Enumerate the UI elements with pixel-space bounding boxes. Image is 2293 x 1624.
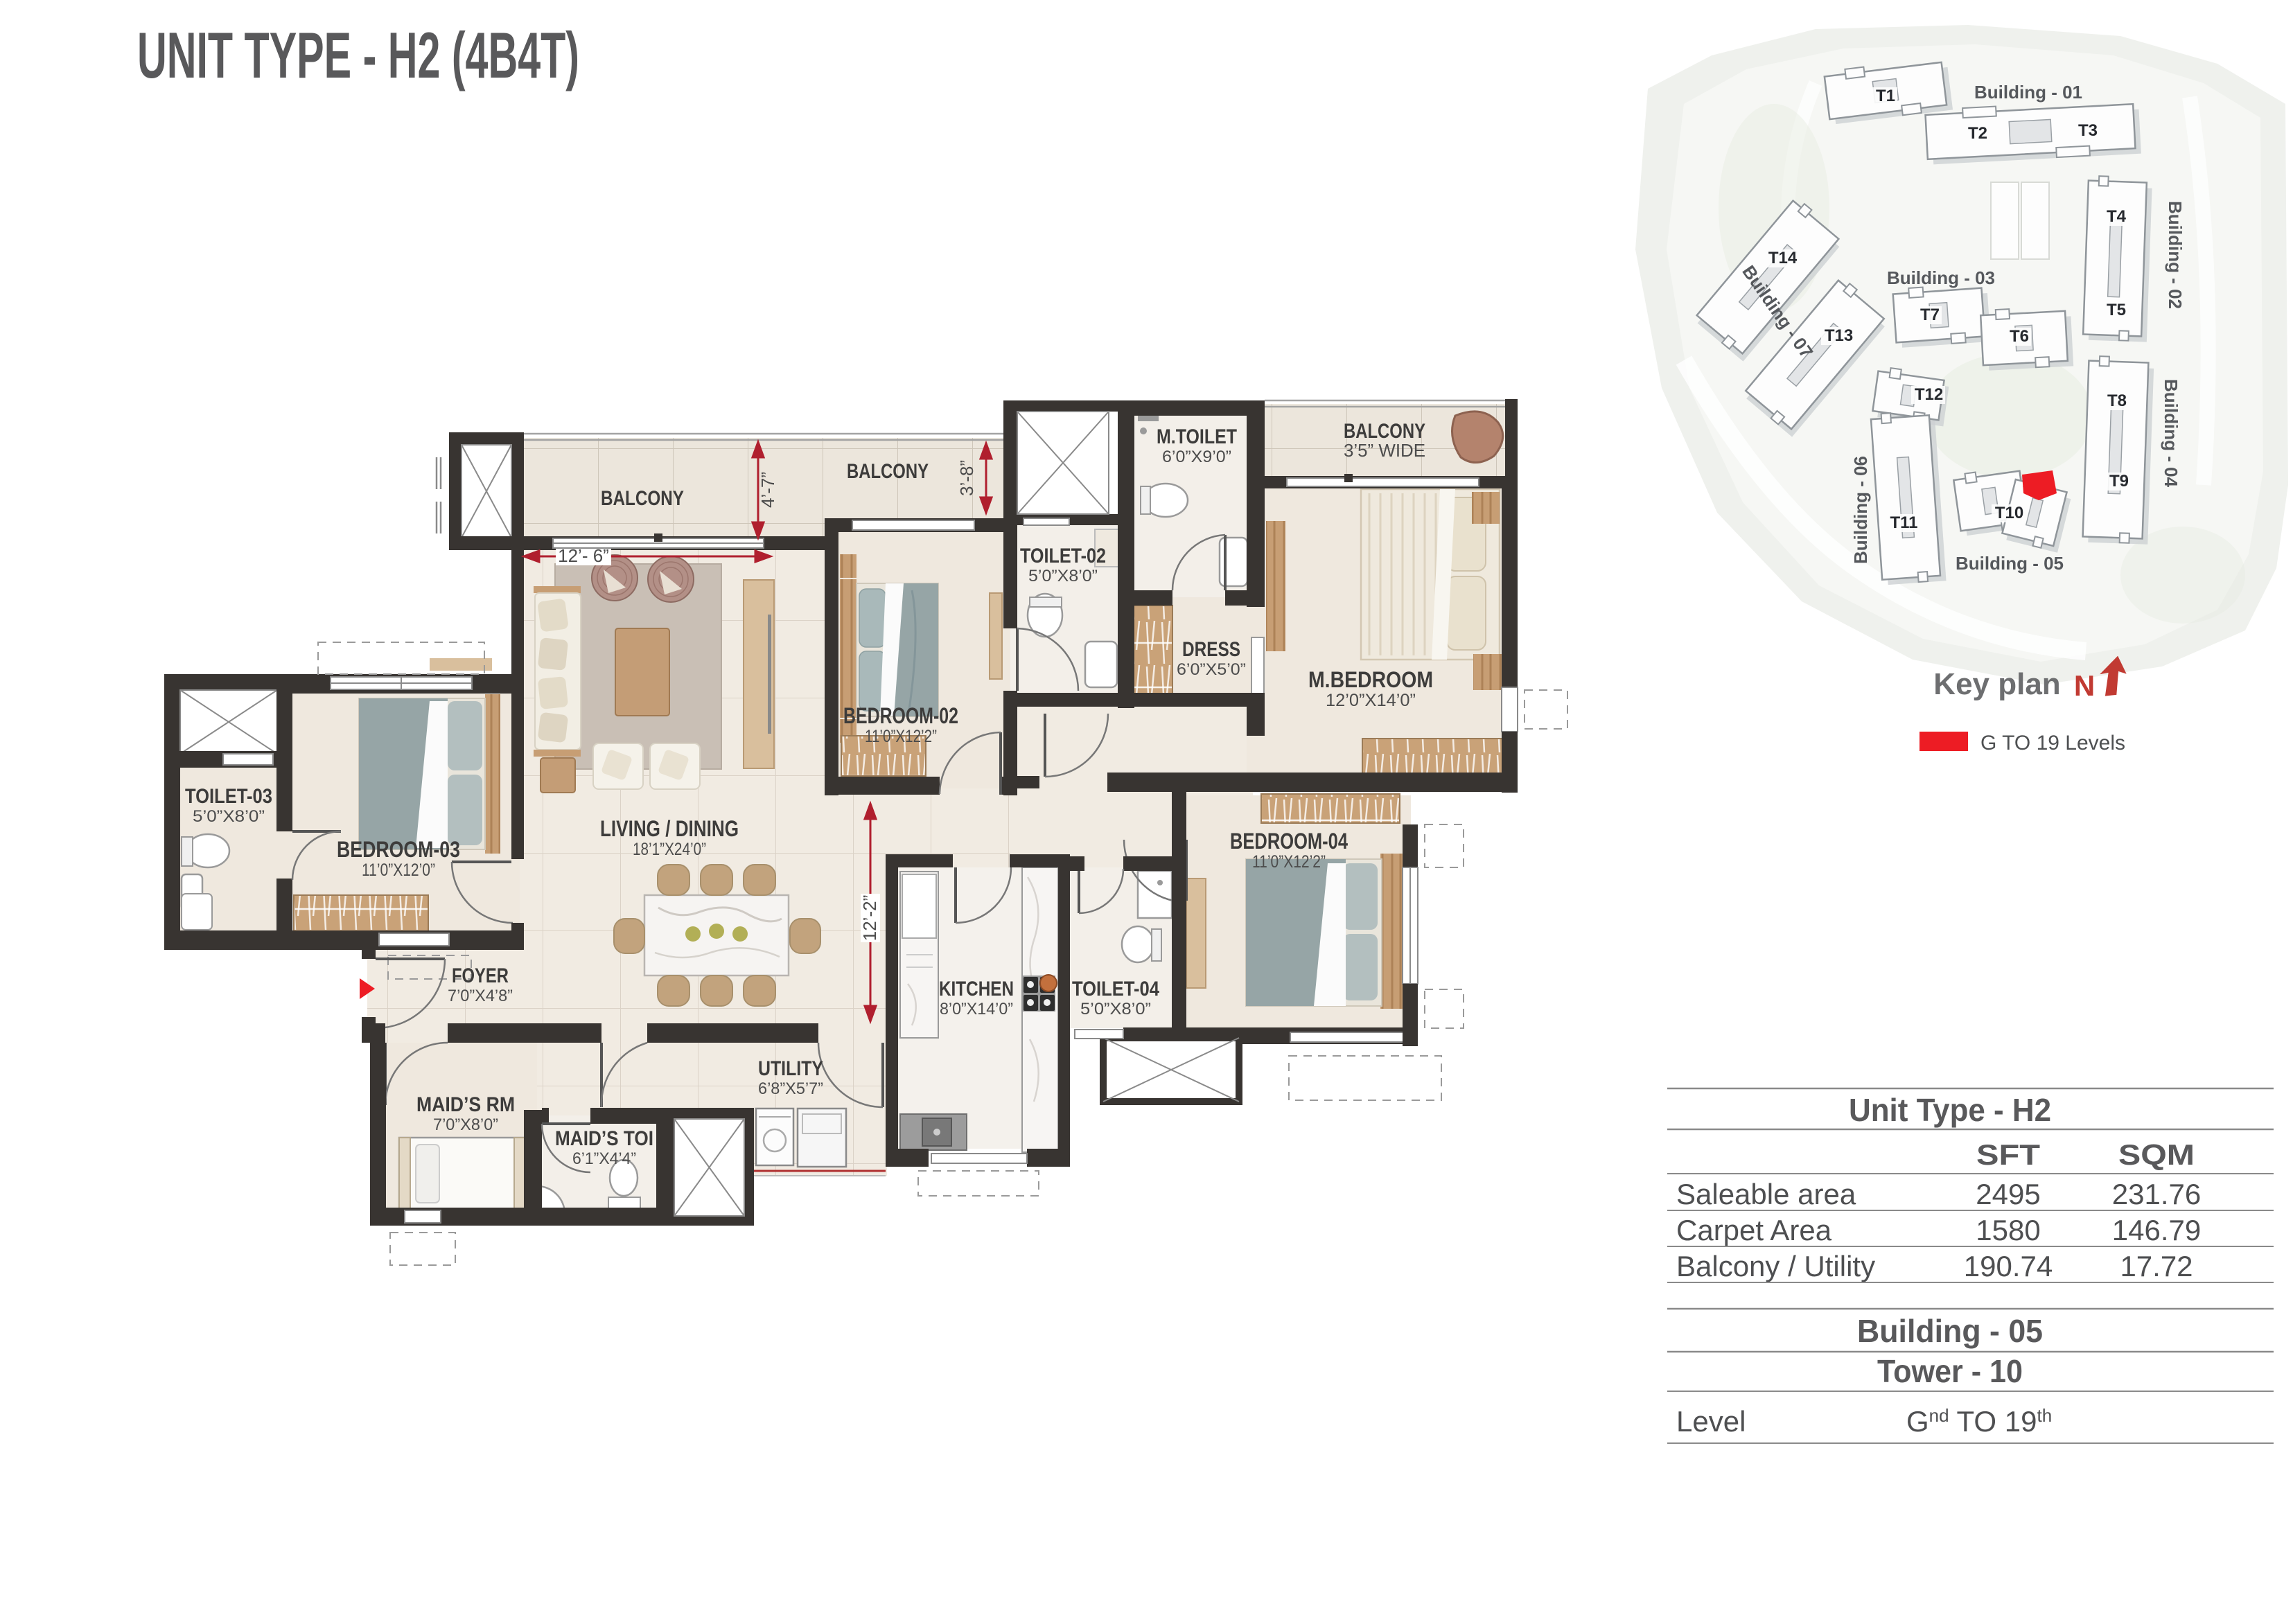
svg-text:KITCHEN: KITCHEN — [939, 978, 1014, 1000]
svg-text:T2: T2 — [1968, 124, 1987, 143]
svg-text:Tower - 10: Tower - 10 — [1877, 1353, 2023, 1389]
svg-text:SQM: SQM — [2118, 1138, 2195, 1171]
svg-text:6’8”X5’7”: 6’8”X5’7” — [758, 1079, 823, 1098]
svg-text:BALCONY: BALCONY — [601, 487, 684, 510]
svg-text:T12: T12 — [1915, 385, 1943, 404]
svg-text:2495: 2495 — [1976, 1178, 2040, 1210]
svg-text:T3: T3 — [2078, 121, 2098, 140]
svg-text:Level: Level — [1676, 1405, 1746, 1438]
svg-text:Building - 04: Building - 04 — [2161, 379, 2181, 488]
svg-text:5’0”X8’0”: 5’0”X8’0” — [1028, 567, 1098, 585]
svg-text:T7: T7 — [1920, 306, 1940, 324]
svg-text:N: N — [2074, 669, 2095, 702]
svg-text:M.BEDROOM: M.BEDROOM — [1308, 667, 1433, 692]
svg-text:T13: T13 — [1825, 326, 1853, 345]
svg-text:Building - 05: Building - 05 — [1857, 1313, 2043, 1349]
svg-text:6’0”X9’0”: 6’0”X9’0” — [1162, 448, 1231, 466]
svg-text:SFT: SFT — [1976, 1138, 2040, 1171]
svg-text:BEDROOM-03: BEDROOM-03 — [337, 837, 460, 862]
svg-text:Key plan: Key plan — [1933, 667, 2060, 701]
svg-text:G TO 19 Levels: G TO 19 Levels — [1980, 732, 2125, 754]
svg-text:11’0”X12’2”: 11’0”X12’2” — [1252, 852, 1326, 872]
svg-text:Unit Type - H2: Unit Type - H2 — [1849, 1092, 2051, 1128]
svg-text:T11: T11 — [1890, 513, 1917, 532]
svg-text:T4: T4 — [2107, 207, 2127, 226]
svg-text:TOILET-04: TOILET-04 — [1072, 978, 1159, 1000]
svg-text:T5: T5 — [2107, 301, 2126, 319]
svg-text:Balcony / Utility: Balcony / Utility — [1676, 1250, 1875, 1282]
svg-text:Gnd TO 19th: Gnd TO 19th — [1906, 1405, 2052, 1438]
svg-text:MAID’S RM: MAID’S RM — [416, 1093, 515, 1116]
svg-text:1580: 1580 — [1976, 1214, 2040, 1246]
svg-text:4’-7”: 4’-7” — [757, 472, 778, 508]
svg-text:T9: T9 — [2109, 472, 2129, 491]
svg-text:12’0”X14’0”: 12’0”X14’0” — [1326, 691, 1416, 710]
svg-text:Building - 06: Building - 06 — [1850, 456, 1871, 564]
svg-text:UNIT TYPE - H2 (4B4T): UNIT TYPE - H2 (4B4T) — [137, 19, 579, 91]
svg-text:Saleable area: Saleable area — [1676, 1178, 1856, 1210]
svg-text:18’1”X24’0”: 18’1”X24’0” — [633, 840, 706, 859]
svg-text:Carpet Area: Carpet Area — [1676, 1214, 1832, 1246]
svg-text:6’1”X4’4”: 6’1”X4’4” — [572, 1149, 636, 1168]
svg-text:6’0”X5’0”: 6’0”X5’0” — [1177, 660, 1246, 679]
svg-text:TOILET-02: TOILET-02 — [1020, 545, 1106, 567]
svg-text:DRESS: DRESS — [1182, 638, 1240, 661]
svg-text:T6: T6 — [2010, 327, 2029, 346]
svg-text:12’- 6”: 12’- 6” — [558, 545, 609, 566]
svg-text:M.TOILET: M.TOILET — [1157, 425, 1237, 448]
svg-text:146.79: 146.79 — [2112, 1214, 2201, 1246]
svg-text:7’0”X8’0”: 7’0”X8’0” — [433, 1115, 498, 1134]
svg-text:BEDROOM-02: BEDROOM-02 — [843, 703, 958, 728]
svg-text:T10: T10 — [1995, 504, 2023, 522]
svg-text:8’0”X14’0”: 8’0”X14’0” — [940, 1000, 1013, 1018]
svg-text:TOILET-03: TOILET-03 — [185, 785, 272, 808]
svg-text:17.72: 17.72 — [2120, 1250, 2193, 1282]
svg-text:T14: T14 — [1768, 249, 1798, 267]
svg-text:BEDROOM-04: BEDROOM-04 — [1230, 829, 1348, 854]
svg-text:7’0”X4’8”: 7’0”X4’8” — [448, 987, 513, 1005]
svg-text:3’5” WIDE: 3’5” WIDE — [1344, 440, 1425, 461]
svg-text:Building - 03: Building - 03 — [1887, 267, 1995, 288]
svg-text:11’0”X12’0”: 11’0”X12’0” — [362, 860, 435, 880]
svg-text:3’-8”: 3’-8” — [956, 460, 977, 496]
svg-text:LIVING / DINING: LIVING / DINING — [600, 816, 739, 841]
svg-text:UTILITY: UTILITY — [758, 1057, 823, 1080]
svg-text:Building - 02: Building - 02 — [2165, 201, 2186, 309]
svg-text:BALCONY: BALCONY — [847, 460, 929, 483]
svg-text:190.74: 190.74 — [1964, 1250, 2053, 1282]
svg-text:11’0”X12’2”: 11’0”X12’2” — [865, 727, 937, 746]
svg-text:Building - 05: Building - 05 — [1956, 553, 2064, 574]
svg-text:231.76: 231.76 — [2112, 1178, 2201, 1210]
svg-text:12’-2”: 12’-2” — [859, 895, 880, 941]
svg-text:FOYER: FOYER — [452, 964, 509, 987]
svg-text:T1: T1 — [1876, 87, 1895, 105]
svg-text:MAID’S TOI: MAID’S TOI — [555, 1127, 653, 1150]
svg-text:5’0”X8’0”: 5’0”X8’0” — [1080, 1000, 1151, 1018]
svg-text:T8: T8 — [2107, 391, 2127, 410]
svg-text:Building - 01: Building - 01 — [1974, 82, 2082, 103]
svg-text:5’0”X8’0”: 5’0”X8’0” — [193, 807, 265, 826]
